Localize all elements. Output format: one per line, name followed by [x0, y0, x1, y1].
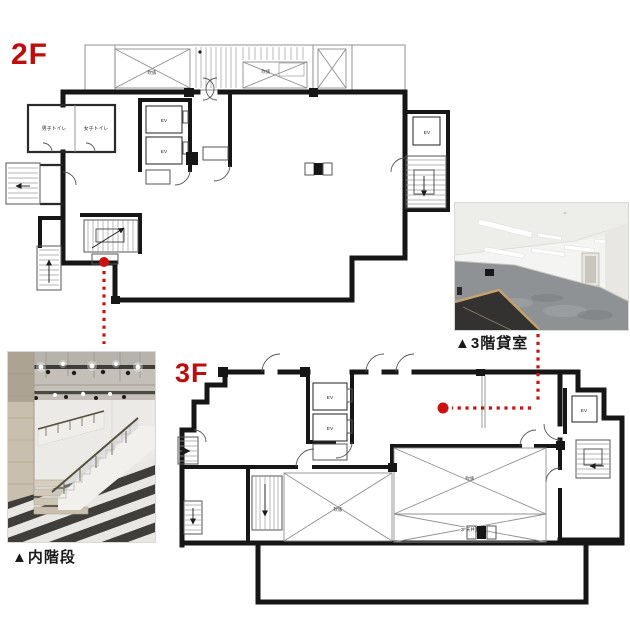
flyer-page: 吹抜 吹抜 男子トイレ 女子トイレ	[0, 0, 630, 630]
elevator-label-3f-1: EV	[327, 395, 334, 401]
lower-left-stairs-2f	[37, 246, 61, 290]
elevator-label-3f-3: EV	[581, 408, 588, 414]
internal-staircase-2f	[82, 215, 140, 264]
floor-label-3f: 3F	[175, 360, 209, 387]
room-label-mens-toilet: 男子トイレ	[42, 125, 67, 132]
ceiling-sprinkler	[564, 212, 567, 215]
floorplan-2f-top-strip	[85, 45, 405, 90]
roof-stairs-2f	[196, 47, 304, 88]
partition-line-3f	[482, 376, 485, 428]
small-cross-box-2f	[318, 49, 346, 88]
floor-object	[485, 269, 494, 276]
room-label-atrium-3f-right: 吹抜	[466, 475, 475, 482]
room-label-womens-toilet: 女子トイレ	[84, 125, 109, 132]
left-entry-2f	[6, 163, 40, 204]
caption-rental-room: ▲3階貸室	[455, 332, 528, 353]
elevator-shaft-3f	[313, 383, 352, 460]
stair-start-dot	[198, 50, 201, 53]
elevator-label-2f-1: EV	[161, 118, 168, 124]
photo-rental-room	[455, 203, 628, 330]
furniture-2f	[186, 147, 332, 175]
elevator-shaft-2f	[146, 106, 188, 184]
photo-inner-staircase-image	[8, 352, 155, 542]
elevator-label-2f-2: EV	[161, 149, 168, 155]
room-label-atrium-2f-b: 吹抜	[262, 68, 271, 75]
plan-marker-dot-3f	[438, 403, 449, 414]
lower-left-stairs-3f	[184, 501, 202, 534]
atrium-cross-box-2f-a	[115, 49, 190, 88]
floorplan-3f: 吹抜 吹抜 2F天井上 EV EV EV	[178, 354, 622, 602]
floor-label-2f: 2F	[11, 40, 48, 70]
walls-2f	[40, 92, 448, 300]
walls-3f	[182, 372, 622, 602]
room-label-above-2f-ceiling: 2F天井上	[461, 526, 480, 533]
room-label-atrium-3f-left: 吹抜	[334, 506, 343, 513]
atrium-cross-box-3f-right	[394, 448, 546, 514]
wall-posts-2f	[111, 88, 318, 304]
floorplan-2f: 吹抜 吹抜 男子トイレ 女子トイレ	[6, 45, 448, 304]
interior-stairs-3f	[252, 476, 282, 530]
photo-inner-staircase	[8, 352, 155, 542]
plan-marker-dot-2f	[99, 257, 109, 267]
caption-inner-staircase: ▲内階段	[12, 546, 76, 567]
photo-rental-room-image	[455, 203, 628, 330]
elevator-label-3f-2: EV	[327, 426, 334, 432]
room-label-atrium-2f-a: 吹抜	[148, 69, 157, 76]
elevator-label-2f-3: EV	[424, 130, 431, 136]
